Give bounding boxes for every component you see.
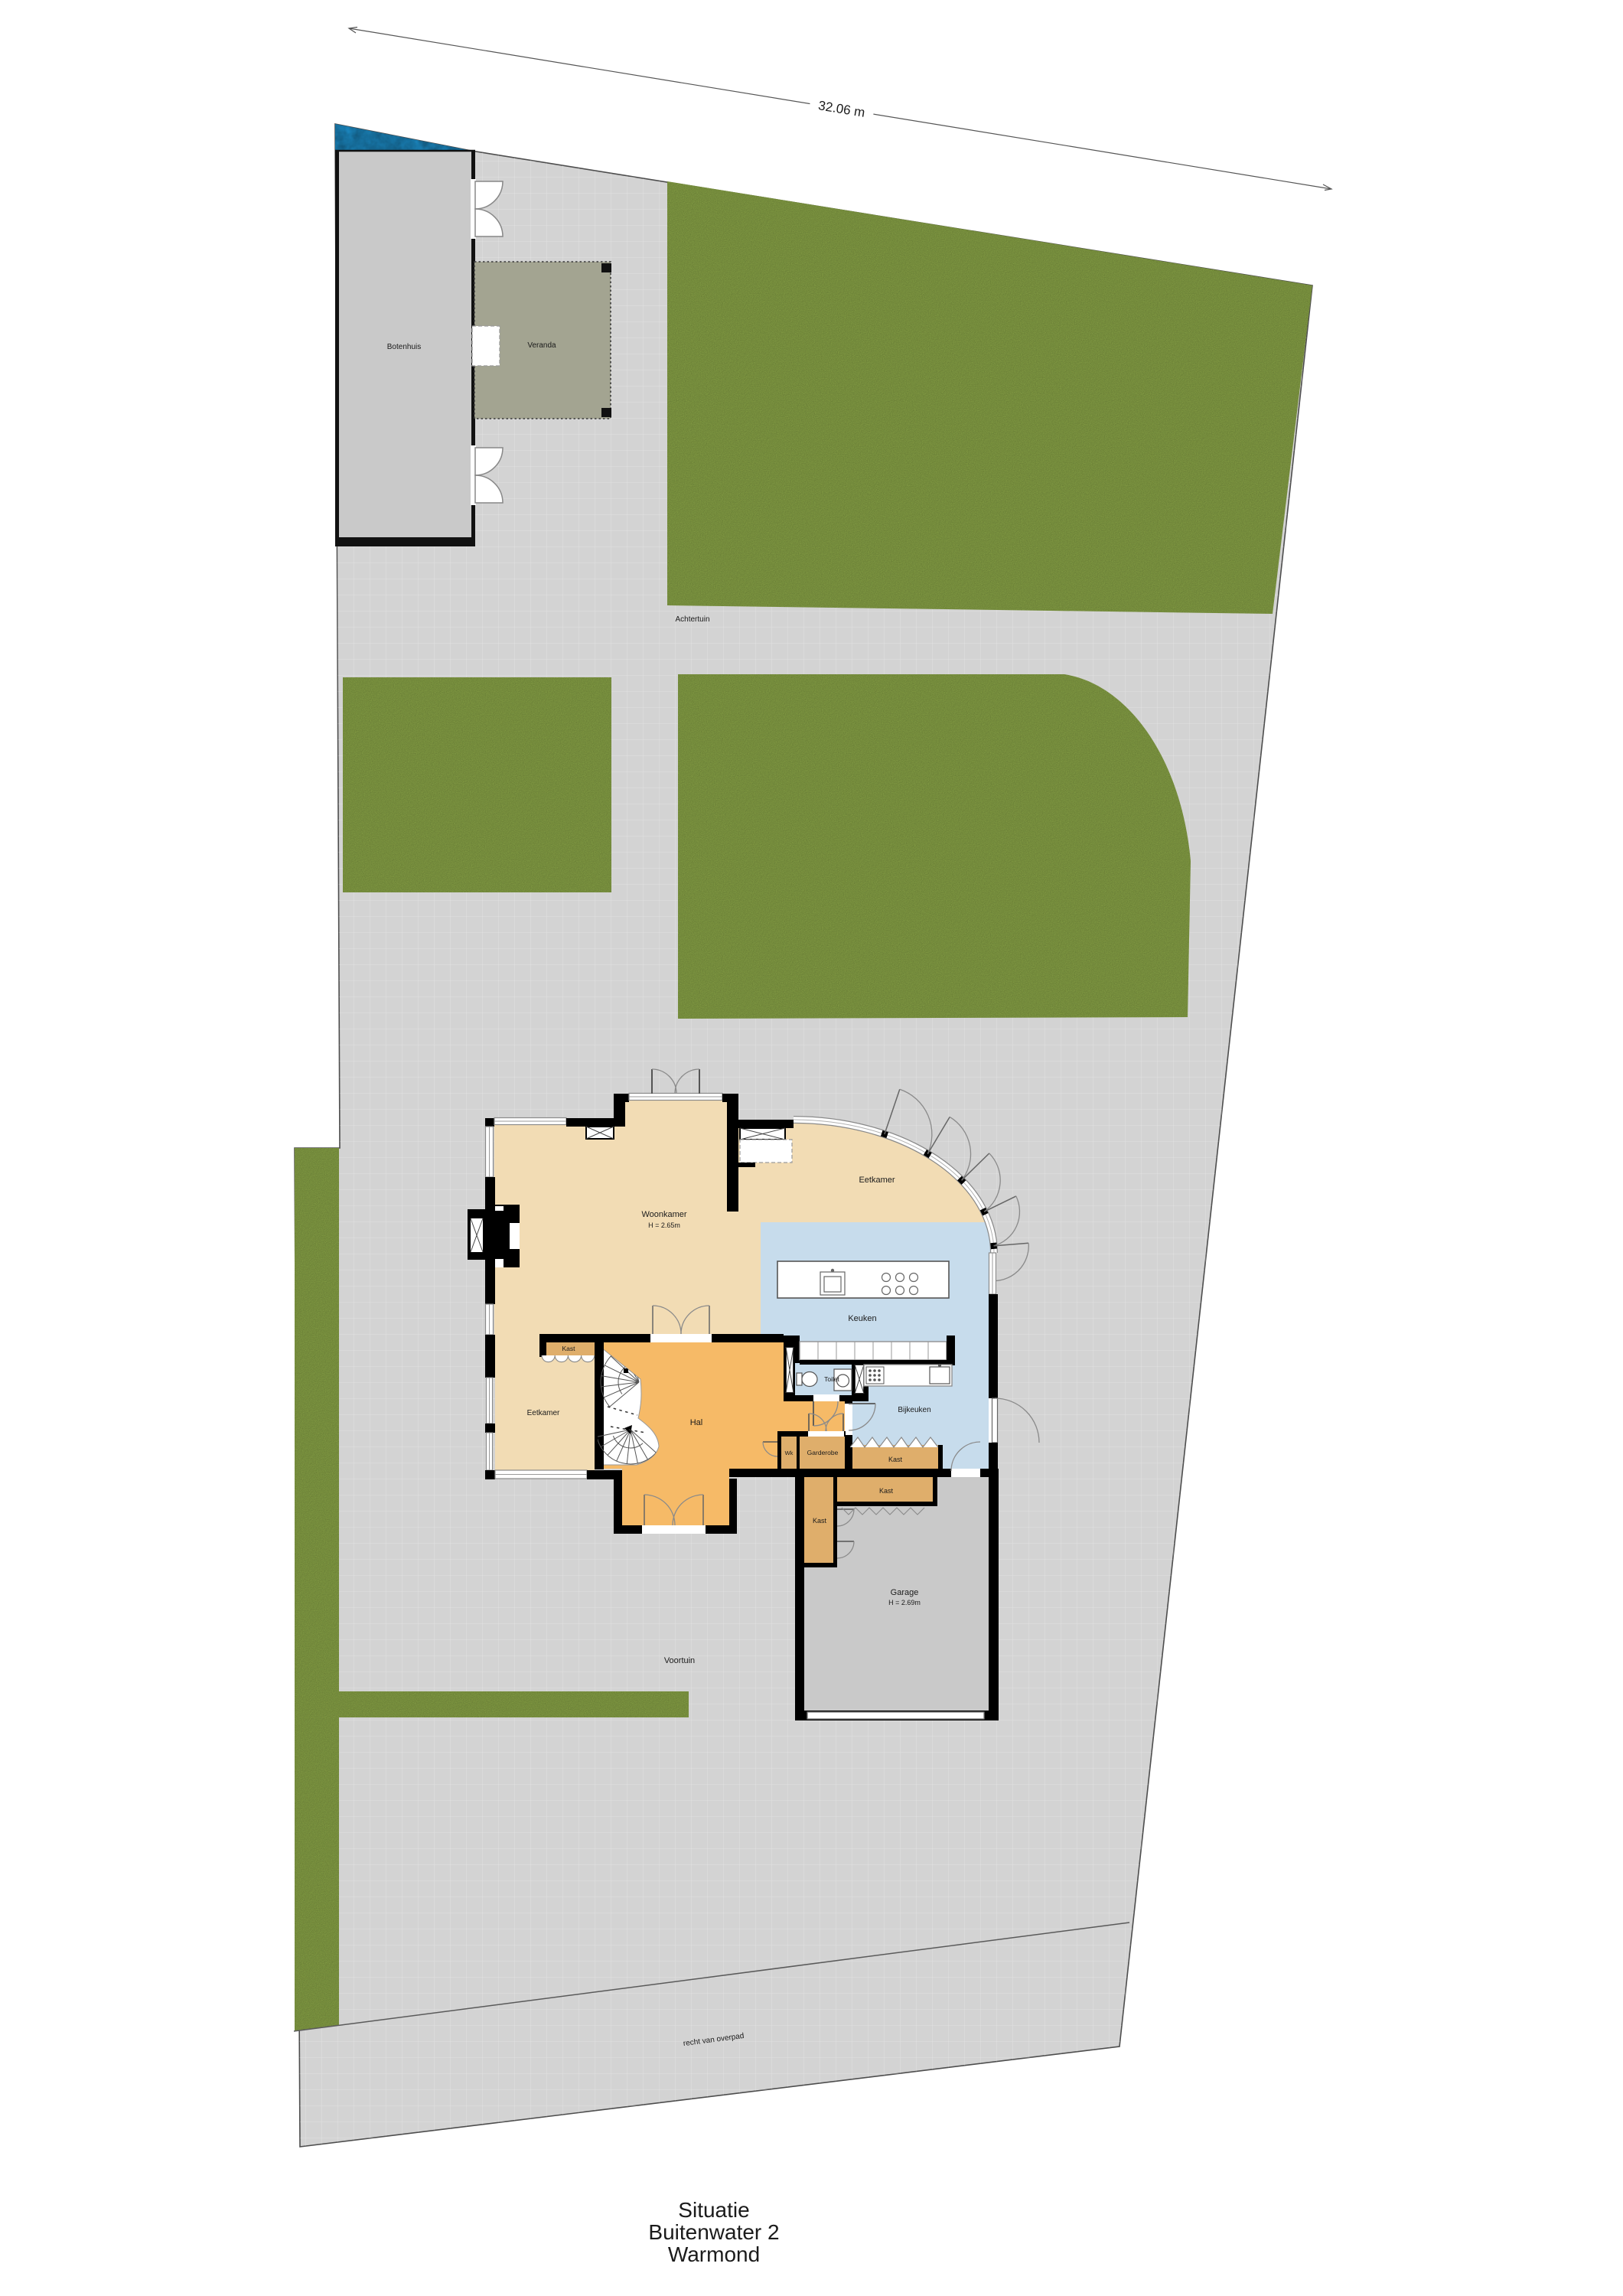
svg-text:Hal: Hal (690, 1418, 703, 1427)
svg-text:Woonkamer: Woonkamer (641, 1210, 686, 1219)
svg-text:Situatie: Situatie (678, 2198, 749, 2222)
svg-text:Eetkamer: Eetkamer (859, 1176, 895, 1185)
svg-text:Wk: Wk (785, 1450, 794, 1456)
svg-text:Buitenwater 2: Buitenwater 2 (648, 2220, 779, 2244)
svg-text:Bijkeuken: Bijkeuken (898, 1406, 930, 1414)
svg-text:Voortuin: Voortuin (664, 1656, 695, 1665)
svg-text:H = 2.65m: H = 2.65m (648, 1221, 680, 1229)
svg-text:Kast: Kast (879, 1487, 894, 1495)
svg-text:Warmond: Warmond (668, 2242, 760, 2266)
svg-text:Garderobe: Garderobe (807, 1449, 839, 1456)
svg-text:Toilet: Toilet (824, 1375, 839, 1383)
svg-text:Kast: Kast (813, 1517, 827, 1525)
svg-text:H = 2.69m: H = 2.69m (888, 1599, 921, 1606)
svg-text:Kast: Kast (562, 1345, 575, 1352)
svg-text:Garage: Garage (891, 1588, 919, 1597)
svg-text:Veranda: Veranda (527, 341, 556, 350)
svg-text:Kast: Kast (888, 1456, 903, 1463)
svg-text:Eetkamer: Eetkamer (527, 1409, 560, 1417)
svg-text:Botenhuis: Botenhuis (387, 343, 421, 351)
svg-text:Achtertuin: Achtertuin (675, 615, 709, 624)
svg-text:Keuken: Keuken (848, 1314, 876, 1323)
